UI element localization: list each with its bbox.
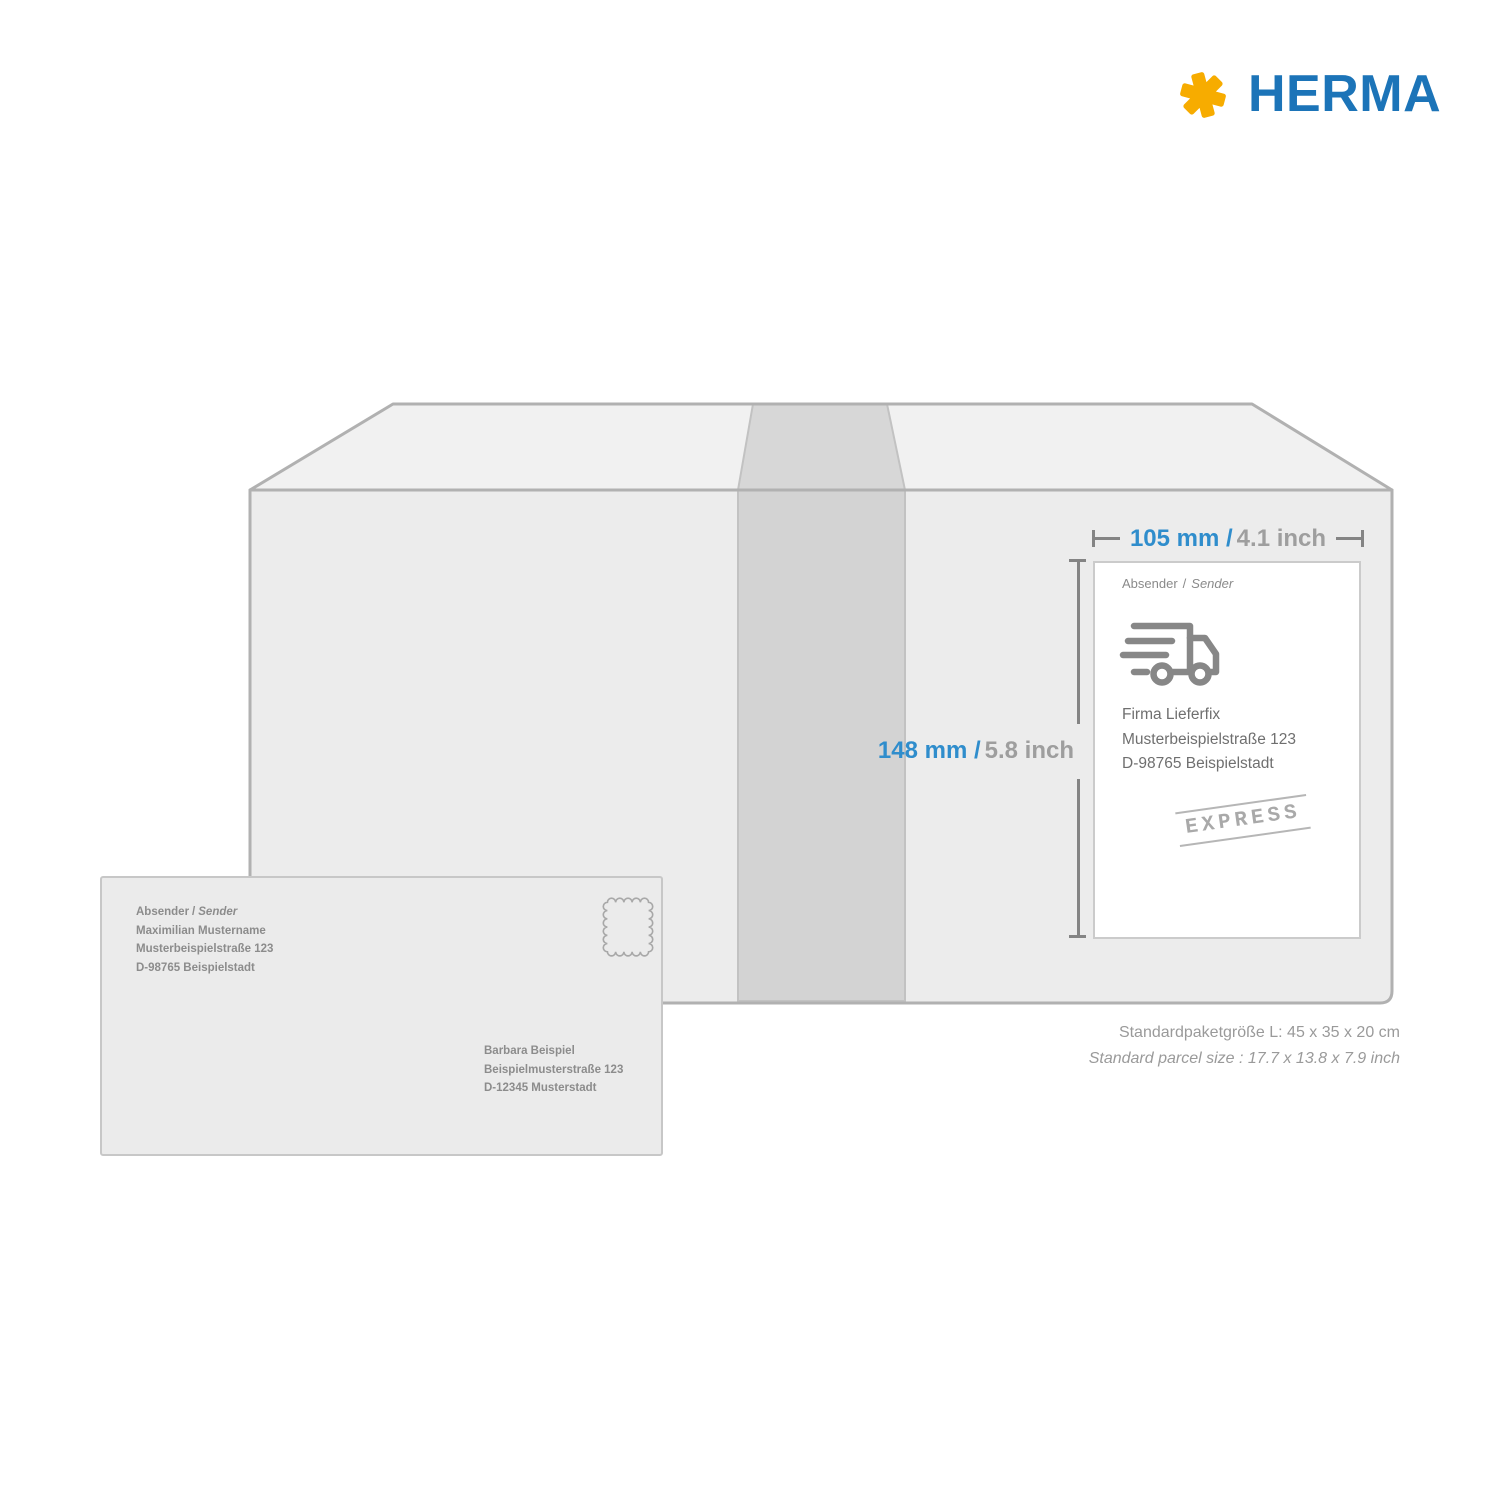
sender-caption-separator: / — [1183, 576, 1187, 591]
delivery-truck-icon — [1119, 618, 1231, 690]
height-dimension-label: 148 mm /5.8 inch — [840, 737, 1074, 765]
width-metric-value: 105 mm / — [1130, 525, 1233, 552]
herma-wordmark: HERMA — [1248, 68, 1441, 120]
envelope-recipient-block: Barbara Beispiel Beispielmusterstraße 12… — [484, 1042, 623, 1098]
envelope-recipient-line: D-12345 Musterstadt — [484, 1079, 623, 1098]
envelope: Absender/Sender Maximilian Mustername Mu… — [100, 876, 663, 1156]
shipping-label: Absender/Sender Firma Lieferfix Musterbe… — [1093, 561, 1361, 939]
herma-star-icon — [1178, 70, 1228, 120]
width-dimension-line-right — [1336, 537, 1362, 540]
height-metric-value: 148 mm / — [878, 737, 981, 764]
width-dimension-label: 105 mm /4.1 inch — [1118, 525, 1338, 553]
envelope-sender-line: Maximilian Mustername — [136, 922, 273, 941]
sender-caption-de: Absender — [1122, 576, 1178, 591]
width-dimension-tick-right — [1361, 530, 1364, 547]
height-dimension-tick-bottom — [1069, 935, 1086, 938]
tape-strip-top — [738, 404, 905, 490]
envelope-sender-line: Musterbeispielstraße 123 — [136, 940, 273, 959]
sender-caption-separator: / — [192, 906, 195, 918]
parcel-size-metric: Standardpaketgröße L: 45 x 35 x 20 cm — [900, 1020, 1400, 1046]
parcel-size-footnote: Standardpaketgröße L: 45 x 35 x 20 cm St… — [900, 1020, 1400, 1072]
envelope-sender-caption: Absender/Sender — [136, 903, 273, 922]
envelope-sender-block: Absender/Sender Maximilian Mustername Mu… — [136, 903, 273, 977]
label-sender-caption: Absender/Sender — [1122, 576, 1233, 591]
product-illustration: Absender/Sender Maximilian Mustername Mu… — [0, 0, 1500, 1500]
height-dimension-line-lower — [1077, 779, 1080, 936]
label-address-block: Firma Lieferfix Musterbeispielstraße 123… — [1122, 703, 1296, 777]
express-stamp: EXPRESS — [1175, 794, 1311, 847]
parcel-size-imperial: Standard parcel size : 17.7 x 13.8 x 7.9… — [900, 1046, 1400, 1072]
label-address-line: D-98765 Beispielstadt — [1122, 752, 1296, 777]
height-dimension-line-upper — [1077, 561, 1080, 724]
sender-caption-en: Sender — [198, 906, 237, 918]
postage-stamp-icon — [600, 890, 656, 960]
height-imperial-value: 5.8 inch — [985, 737, 1074, 764]
sender-caption-de: Absender — [136, 906, 189, 918]
width-imperial-value: 4.1 inch — [1237, 525, 1326, 552]
label-address-line: Musterbeispielstraße 123 — [1122, 728, 1296, 753]
label-address-line: Firma Lieferfix — [1122, 703, 1296, 728]
envelope-recipient-line: Beispielmusterstraße 123 — [484, 1061, 623, 1080]
envelope-recipient-line: Barbara Beispiel — [484, 1042, 623, 1061]
sender-caption-en: Sender — [1191, 576, 1233, 591]
width-dimension-line-left — [1094, 537, 1120, 540]
herma-logo: HERMA — [1178, 68, 1448, 128]
envelope-sender-line: D-98765 Beispielstadt — [136, 959, 273, 978]
